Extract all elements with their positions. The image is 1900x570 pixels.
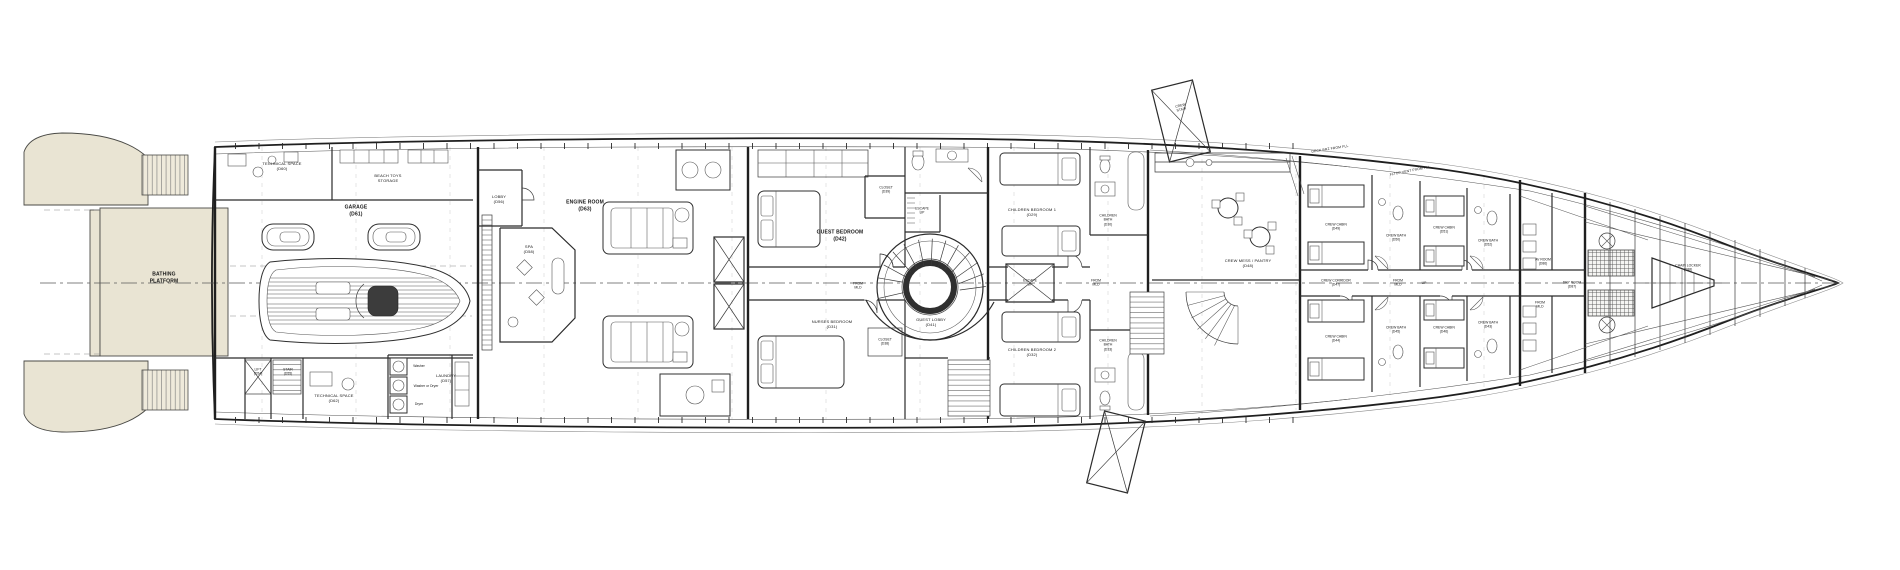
crew-stair-straight bbox=[1130, 292, 1164, 354]
children-beds-2 bbox=[1000, 312, 1080, 416]
crew-spiral-stair bbox=[1186, 292, 1238, 346]
machinery-fwd-top bbox=[676, 150, 730, 190]
label-children-bedroom-2: CHILDREN BEDROOM 2 (D32) bbox=[1008, 347, 1056, 357]
machinery-fwd-bottom bbox=[660, 374, 730, 416]
label-up-crew: UP bbox=[1422, 281, 1427, 285]
label-crew-bath-3: CREW BATH (D45) bbox=[1386, 326, 1406, 335]
crew-stair-trunk-top bbox=[1152, 80, 1211, 162]
escape-stair-treads bbox=[907, 198, 915, 223]
label-lobby: LOBBY (D56) bbox=[492, 194, 506, 204]
label-spa: SPA (D58) bbox=[524, 244, 535, 254]
label-crew-cabin-2: CREW CABIN (D51) bbox=[1433, 226, 1455, 235]
label-engine-room: ENGINE ROOM (D63) bbox=[566, 200, 604, 213]
label-dry-room: DRY ROOM (D87) bbox=[1563, 281, 1582, 290]
crew-mess-furniture bbox=[1155, 153, 1304, 254]
label-children-bath-1: CHILDREN BATH (D30) bbox=[1099, 213, 1116, 226]
frame-ticks-top bbox=[218, 143, 1303, 149]
label-bathing-platform: BATHING PLATFORM bbox=[150, 272, 179, 285]
label-dryer: Dryer bbox=[415, 402, 423, 406]
label-laundry: LAUNDRY (D57) bbox=[436, 373, 456, 383]
label-technical-space-bottom: TECHNICAL SPACE (D62) bbox=[314, 393, 353, 403]
stern-stairs-bottom bbox=[142, 370, 188, 410]
bow-wall-shelves bbox=[1523, 224, 1536, 351]
label-from-mld-crew: FROM MLD bbox=[1393, 279, 1403, 288]
guest-wardrobe bbox=[758, 150, 868, 177]
label-crew-cabin-4: CREW CABIN (D46) bbox=[1433, 326, 1455, 335]
label-guest-lobby: GUEST LOBBY (D41) bbox=[916, 317, 946, 327]
label-garage: GARAGE (D61) bbox=[345, 205, 368, 218]
children-bath-1-fixtures bbox=[1095, 152, 1144, 210]
label-from-mld-guest: FROM MLD bbox=[853, 282, 863, 291]
guest-bath bbox=[912, 149, 982, 182]
label-nurses-bedroom: NURSES BEDROOM (D31) bbox=[812, 319, 853, 329]
label-children-bath-2: CHILDREN BATH (D33) bbox=[1099, 338, 1116, 351]
guest-bed bbox=[758, 191, 820, 247]
label-closet-fwd: CLOSET (D39) bbox=[879, 186, 893, 195]
swim-platform-wing-bottom bbox=[24, 361, 148, 432]
nurses-bed bbox=[758, 336, 844, 388]
plan-drawing bbox=[0, 0, 1900, 570]
label-av-room: AV ROOM (D86) bbox=[1535, 258, 1551, 267]
lower-deck-plan: BATHING PLATFORM TECHNICAL SPACE (D60) B… bbox=[0, 0, 1900, 570]
label-crew-bath-1: CREW BATH (D50) bbox=[1386, 234, 1406, 243]
stern-stairs-top bbox=[142, 155, 188, 195]
label-crew-bath-4: CREW BATH (D43) bbox=[1478, 321, 1498, 330]
label-crew-cabin-1: CREW CABIN (D49) bbox=[1325, 223, 1347, 232]
children-beds-1 bbox=[1000, 153, 1080, 256]
washer-dryer-units bbox=[390, 358, 407, 413]
swim-platform-wing-top bbox=[24, 133, 148, 205]
label-children-bedroom-1: CHILDREN BEDROOM 1 (D29) bbox=[1008, 207, 1056, 217]
generator-port bbox=[603, 202, 693, 254]
label-crew-bath-2: CREW BATH (D52) bbox=[1478, 239, 1498, 248]
generator-stbd bbox=[603, 316, 693, 368]
jetski-2 bbox=[368, 224, 420, 250]
spa-furniture bbox=[508, 258, 564, 327]
label-stair: STAIR (D55) bbox=[283, 368, 293, 377]
crew-section bbox=[1087, 80, 1520, 493]
label-from-mld-children: FROM MLD bbox=[1091, 279, 1101, 288]
jetski-1 bbox=[262, 224, 314, 250]
label-crew-cabin-3: CREW CABIN (D44) bbox=[1325, 335, 1347, 344]
label-chain-locker: CHAIN LOCKER (D88) bbox=[1675, 264, 1700, 273]
beach-toys-shelves bbox=[340, 150, 448, 163]
label-beach-toys-storage: BEACH TOYS STORAGE bbox=[374, 173, 401, 183]
label-escape-up-guest: ESCAPE UP bbox=[915, 207, 929, 216]
label-closet-aft: CLOSET (D38) bbox=[878, 338, 892, 347]
label-from-mld-bow: FROM MLD bbox=[1535, 301, 1545, 310]
label-crew-mess-pantry: CREW MESS / PANTRY (D48) bbox=[1225, 258, 1272, 268]
label-lift: LIFT (D54) bbox=[254, 368, 262, 377]
tender-boat bbox=[259, 259, 470, 344]
label-guest-bedroom: GUEST BEDROOM (D42) bbox=[817, 230, 864, 243]
label-crew-corridor: CREW CORRIDOR (D47) bbox=[1321, 279, 1351, 288]
guest-stair-down bbox=[948, 360, 990, 416]
children-bath-2-fixtures bbox=[1095, 352, 1144, 410]
bow-storage-rack-bottom bbox=[1588, 290, 1634, 316]
label-escape-up-children: ESCAPE UP bbox=[1023, 279, 1037, 288]
label-washer: Washer bbox=[413, 364, 425, 368]
label-technical-space-top: TECHNICAL SPACE (D60) bbox=[262, 161, 301, 171]
bow-storage-rack-top bbox=[1588, 250, 1634, 276]
stern-platforms bbox=[24, 133, 228, 432]
label-washer-or-dryer: Washer or Dryer bbox=[414, 384, 439, 388]
